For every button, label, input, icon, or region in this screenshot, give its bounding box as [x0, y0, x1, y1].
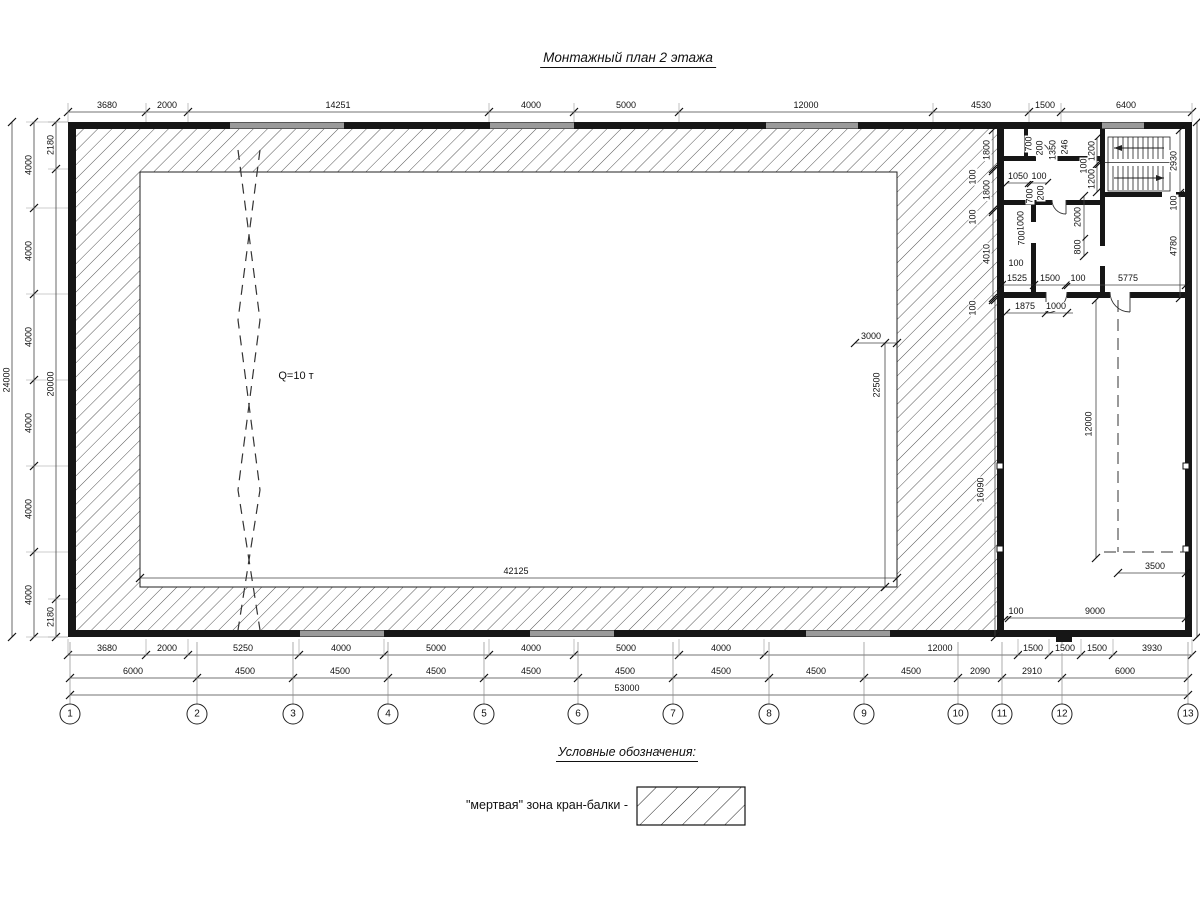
- axis-bubble-12: 12: [1052, 704, 1073, 725]
- axis-bubble-5: 5: [474, 704, 495, 725]
- axis-bubble-9: 9: [854, 704, 875, 725]
- axis-bubble-1: 1: [60, 704, 81, 725]
- legend-item-label: "мертвая" зона кран-балки -: [466, 798, 628, 812]
- axis-bubble-8: 8: [759, 704, 780, 725]
- axis-bubble-3: 3: [283, 704, 304, 725]
- axis-bubble-7: 7: [663, 704, 684, 725]
- dimension-lines: [0, 0, 1200, 900]
- floor-plan-canvas: 3680200014251400050001200045301500640036…: [0, 0, 1200, 900]
- drawing-title: Монтажный план 2 этажа: [540, 50, 716, 68]
- dead-zone-hatch-swatch: [636, 786, 746, 826]
- axis-bubble-13: 13: [1178, 704, 1199, 725]
- axis-bubble-2: 2: [187, 704, 208, 725]
- axis-bubble-10: 10: [948, 704, 969, 725]
- axis-bubble-4: 4: [378, 704, 399, 725]
- axis-bubble-6: 6: [568, 704, 589, 725]
- axis-bubble-11: 11: [992, 704, 1013, 725]
- legend-heading: Условные обозначения:: [556, 745, 698, 762]
